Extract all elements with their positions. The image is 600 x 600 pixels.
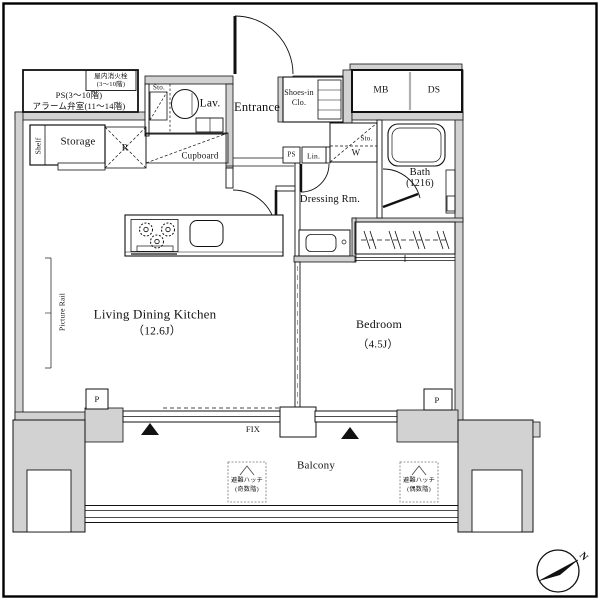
compass-icon bbox=[537, 550, 579, 592]
lav-storage-icon bbox=[150, 84, 170, 132]
refrigerator-label: R bbox=[122, 144, 129, 154]
floorplan: 屋内消火栓 (3～10階) PS(3～10階) アラーム弁室(11～14階) M… bbox=[0, 0, 600, 600]
bath-label-line1: Bath bbox=[410, 168, 431, 179]
washer-label: W bbox=[352, 148, 361, 157]
window-pier bbox=[280, 407, 316, 437]
bedroom-label-line1: Bedroom bbox=[356, 318, 402, 330]
lavatory-label: Lav. bbox=[200, 98, 221, 110]
window-bedroom bbox=[315, 411, 397, 422]
balcony-railing bbox=[85, 506, 458, 523]
duct-space-label: DS bbox=[428, 86, 441, 96]
sto-over-washer-label: Sto. bbox=[361, 136, 373, 143]
hatch-odd-label-line1: 避難ハッチ bbox=[231, 478, 263, 484]
hatch-even-label-line1: 避難ハッチ bbox=[403, 478, 435, 484]
shelf-label: Shelf bbox=[34, 138, 42, 155]
window-fix bbox=[123, 408, 280, 422]
dressing-room-label: Dressing Rm. bbox=[300, 195, 360, 206]
picture-rail-line bbox=[45, 258, 51, 368]
window-opening-marker-right bbox=[341, 427, 359, 439]
meter-box-label: MB bbox=[373, 86, 388, 96]
ps-riser-label-line2: アラーム弁室(11～14階) bbox=[33, 101, 126, 110]
picture-rail-label: Picture Rail bbox=[58, 293, 66, 331]
bath-label-line2: (1216) bbox=[406, 179, 434, 189]
entrance-label: Entrance bbox=[234, 101, 280, 114]
hatch-even-label-line2: (偶数階) bbox=[407, 486, 431, 492]
shoes-closet-label-line1: Shoes-in bbox=[284, 89, 314, 97]
storage-label: Storage bbox=[60, 137, 95, 148]
lav-storage-label: Sto. bbox=[153, 84, 165, 91]
hydrant-label-line1: 屋内消火栓 bbox=[94, 74, 128, 81]
closet-hanger-icon bbox=[355, 222, 455, 262]
linen-label: Lin. bbox=[307, 152, 320, 160]
ldk-label-line2: （12.6J） bbox=[132, 326, 181, 338]
window-opening-marker-left bbox=[141, 423, 159, 435]
entrance-door-icon bbox=[235, 16, 293, 74]
washbasin-icon bbox=[299, 230, 350, 256]
cupboard-label: Cupboard bbox=[181, 151, 218, 160]
ldk-label-line1: Living Dining Kitchen bbox=[94, 308, 217, 321]
meter-box-duct-space bbox=[352, 70, 462, 112]
hydrant-label-line2: (3～10階) bbox=[97, 82, 125, 89]
ps-small-label: PS bbox=[287, 152, 295, 159]
hatch-odd-label-line2: (奇数階) bbox=[235, 486, 259, 492]
kitchen-counter bbox=[125, 215, 283, 256]
dressing-door-icon bbox=[301, 164, 329, 192]
pillar-label-right: P bbox=[435, 395, 440, 404]
bedroom-label-line2: （4.5J） bbox=[357, 340, 398, 351]
fix-window-label: FIX bbox=[246, 425, 260, 434]
ps-riser-label-line1: PS(3～10階) bbox=[56, 91, 103, 100]
pillar-label-left: P bbox=[95, 395, 100, 404]
shoes-closet-label-line2: Clo. bbox=[292, 99, 306, 107]
toilet-icon bbox=[172, 90, 224, 133]
balcony-label: Balcony bbox=[297, 461, 335, 472]
